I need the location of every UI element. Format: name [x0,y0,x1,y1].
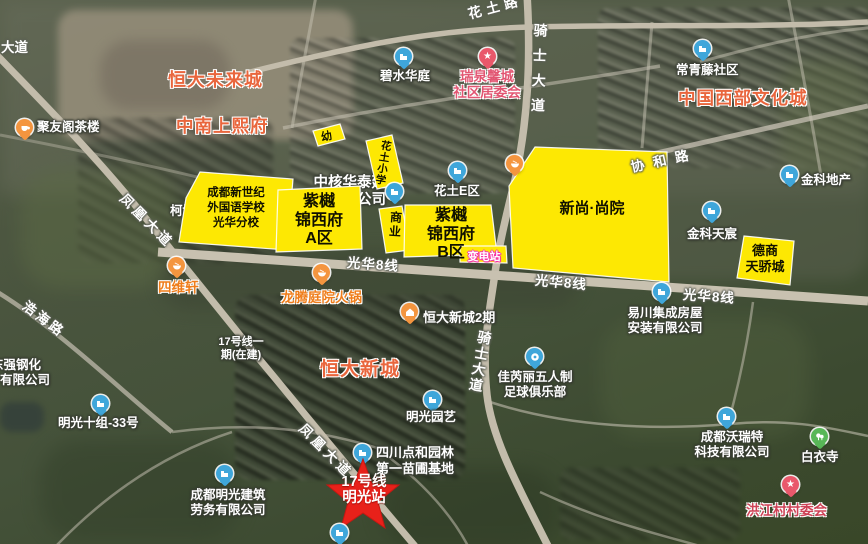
parcel-label-new-century-school[interactable]: 成都新世纪 外国语学校 光华分校 [185,186,287,231]
parcel-label-kindergarten[interactable]: 幼 [320,127,334,145]
trees-icon [815,432,825,442]
poi-label-dongqiang-line2[interactable]: 有限公司 [0,373,50,388]
poi-pin-worite-tech[interactable] [718,408,735,425]
road-label-xiehe-road: 协和路 [629,142,699,176]
poi-label-siweixuan[interactable]: 四维轩 [158,280,199,295]
area-label-hengda-future-city[interactable]: 恒大未来城 [168,66,263,92]
metro-station-label[interactable]: 17号线 明光站 [328,474,400,506]
poi-label-mingguang-gardening[interactable]: 明光园艺 [406,410,456,425]
parcel-label-xinshang[interactable]: 新尚·尚院 [537,197,647,218]
building-icon [390,187,399,196]
building-icon [358,448,367,457]
building-icon [220,469,229,478]
poi-pin-zhonghe-huatai[interactable] [386,183,403,200]
poi-pin-jinke-estate[interactable] [781,166,798,183]
poi-label-changqingteng-community[interactable]: 常青藤社区 [676,63,739,78]
house-icon [405,307,415,317]
star-icon: ★ [786,480,795,490]
terrain-field-light-2 [600,318,810,438]
building-icon [657,287,666,296]
poi-pin-ruiquan-committee[interactable]: ★ [479,48,496,65]
road-label-guanghua8-c: 光华8线 [682,283,735,307]
road-label-guanghua8-a: 光华8线 [346,251,399,275]
road-minor-3 [642,22,652,148]
poi-pin-mingguang-construction[interactable] [216,465,233,482]
poi-pin-jiaruili-soccer-club[interactable] [526,348,543,365]
poi-pin-longteng-hotpot[interactable] [313,264,330,281]
poi-label-bishui-huating[interactable]: 碧水华庭 [377,69,433,84]
poi-label-longteng-hotpot[interactable]: 龙腾庭院火锅 [281,290,362,305]
poi-label-mingguang-group10[interactable]: 明光十组-33号 [58,416,139,431]
road-label-guanghua8-b: 光华8线 [534,269,588,293]
poi-pin-mingguang-group10[interactable] [92,395,109,412]
poi-label-jiaruili-soccer-club[interactable]: 佳芮丽五人制 足球俱乐部 [494,370,576,400]
poi-pin-yichuan-housing[interactable] [653,283,670,300]
road-label-qishi-avenue-mid: 骑士大道 [465,329,496,396]
building-icon [428,395,437,404]
poi-pin-huatu-e-block[interactable] [449,162,466,179]
poi-pin-baiyi-temple[interactable] [811,428,828,445]
road-label-haohai-road: 浩海路 [19,295,71,341]
terrain-pond [0,402,44,432]
poi-label-juyouge-teahouse[interactable]: 聚友阁茶楼 [37,120,100,135]
poi-pin-siweixuan[interactable] [168,257,185,274]
road-label-qishi-avenue-top: 骑士大道 [527,23,550,124]
poi-pin-bishui-huating[interactable] [395,48,412,65]
road-minor-6 [0,135,230,185]
road-path-5 [540,492,700,544]
building-icon [399,52,408,61]
poi-label-hongjiang-committee[interactable]: 洪江村村委会 [746,503,827,518]
area-label-china-west-culture-city[interactable]: 中国西部文化城 [678,85,808,110]
poi-pin-changqingteng-community[interactable] [694,40,711,57]
building-icon [96,399,105,408]
road-label-huatu-road: 花土路 [465,0,524,23]
bowl-icon [510,159,520,169]
poi-pin-jinke-tianchen[interactable] [703,202,720,219]
poi-pin-mingguang-gardening[interactable] [424,391,441,408]
road-huatu [250,22,868,72]
poi-label-ruiquan-committee[interactable]: 瑞泉馨城 社区居委会 [445,69,529,101]
star-icon: ★ [483,52,492,62]
bowl-icon [317,268,327,278]
road-path-1 [490,402,868,436]
poi-pin-bottom-unnamed[interactable] [331,524,348,541]
poi-label-baiyi-temple[interactable]: 白衣寺 [801,450,839,465]
parcel-label-substation[interactable]: 变电站 [463,248,505,264]
poi-label-hengda-xincheng-2[interactable]: 恒大新城2期 [423,310,495,325]
poi-pin-hongjiang-committee[interactable]: ★ [782,476,799,493]
note-line17-under-construction: 17号线一 期(在建) [212,336,270,362]
terrain-field-dark-1 [380,468,560,544]
soccer-icon [530,352,540,362]
road-path-2 [728,302,753,424]
building-icon [698,44,707,53]
poi-label-mingguang-construction[interactable]: 成都明光建筑 劳务有限公司 [185,488,271,518]
poi-label-yichuan-housing[interactable]: 易川集成房屋 安装有限公司 [620,306,710,336]
poi-label-worite-tech[interactable]: 成都沃瑞特 科技有限公司 [692,430,772,460]
poi-label-nursery-base[interactable]: 四川点和园林 第一苗圃基地 [376,445,454,477]
poi-pin-hengda-xincheng-2[interactable] [401,303,418,320]
terrain-field-light-3 [780,60,868,180]
poi-pin-juyouge-teahouse[interactable] [16,119,33,136]
terrain-village-bottom-right [560,468,740,540]
building-icon [453,166,462,175]
teacup-icon [20,123,30,133]
area-label-zhongnan-shangxifu[interactable]: 中南上熙府 [176,113,269,138]
poi-label-huatu-e-block[interactable]: 花土E区 [434,184,480,199]
building-icon [785,170,794,179]
building-icon [707,206,716,215]
parcel-label-ziyue-a[interactable]: 紫樾 锦西府 A区 [277,193,361,249]
building-icon [335,528,344,537]
poi-label-dongqiang-line1[interactable]: 东强钢化 [0,358,41,373]
poi-pin-restaurant-near-xinshang[interactable] [506,155,523,172]
building-icon [722,412,731,421]
road-minor-4 [700,28,868,62]
area-label-hengda-xincheng[interactable]: 恒大新城 [320,354,400,381]
satellite-map[interactable]: 中核华泰建设 有限公司 柯博 幼 花土小学 成都新世纪 外国语学校 光华分校 紫… [0,0,868,544]
road-minor-2 [292,0,316,128]
bowl-icon [172,261,182,271]
parcel-label-commercial[interactable]: 商业 [386,210,405,239]
road-label-fenghuang-avenue-upper: 凤凰大道 [116,188,180,252]
poi-label-jinke-tianchen[interactable]: 金科天宸 [687,227,737,242]
road-label-dadao: 大道 [1,36,28,56]
poi-label-jinke-estate[interactable]: 金科地产 [801,173,851,188]
parcel-label-deshang[interactable]: 德商 天骄城 [737,243,793,274]
